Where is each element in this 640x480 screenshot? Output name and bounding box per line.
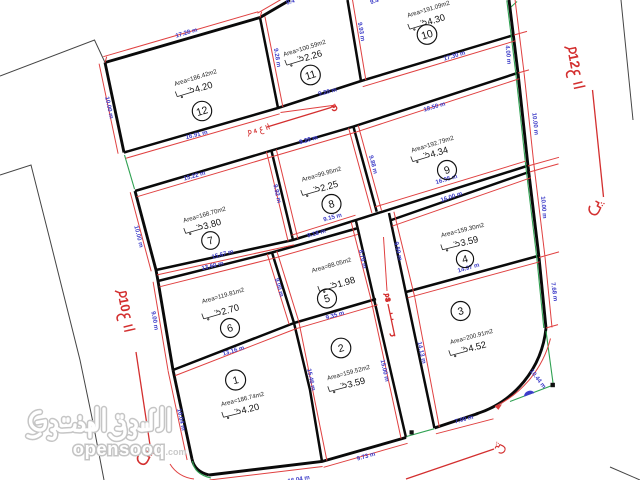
svg-text:12: 12 <box>565 52 583 70</box>
svg-text:opensooq: opensooq <box>73 438 165 459</box>
svg-text:10: 10 <box>116 296 134 313</box>
svg-text:.com: .com <box>165 447 186 457</box>
